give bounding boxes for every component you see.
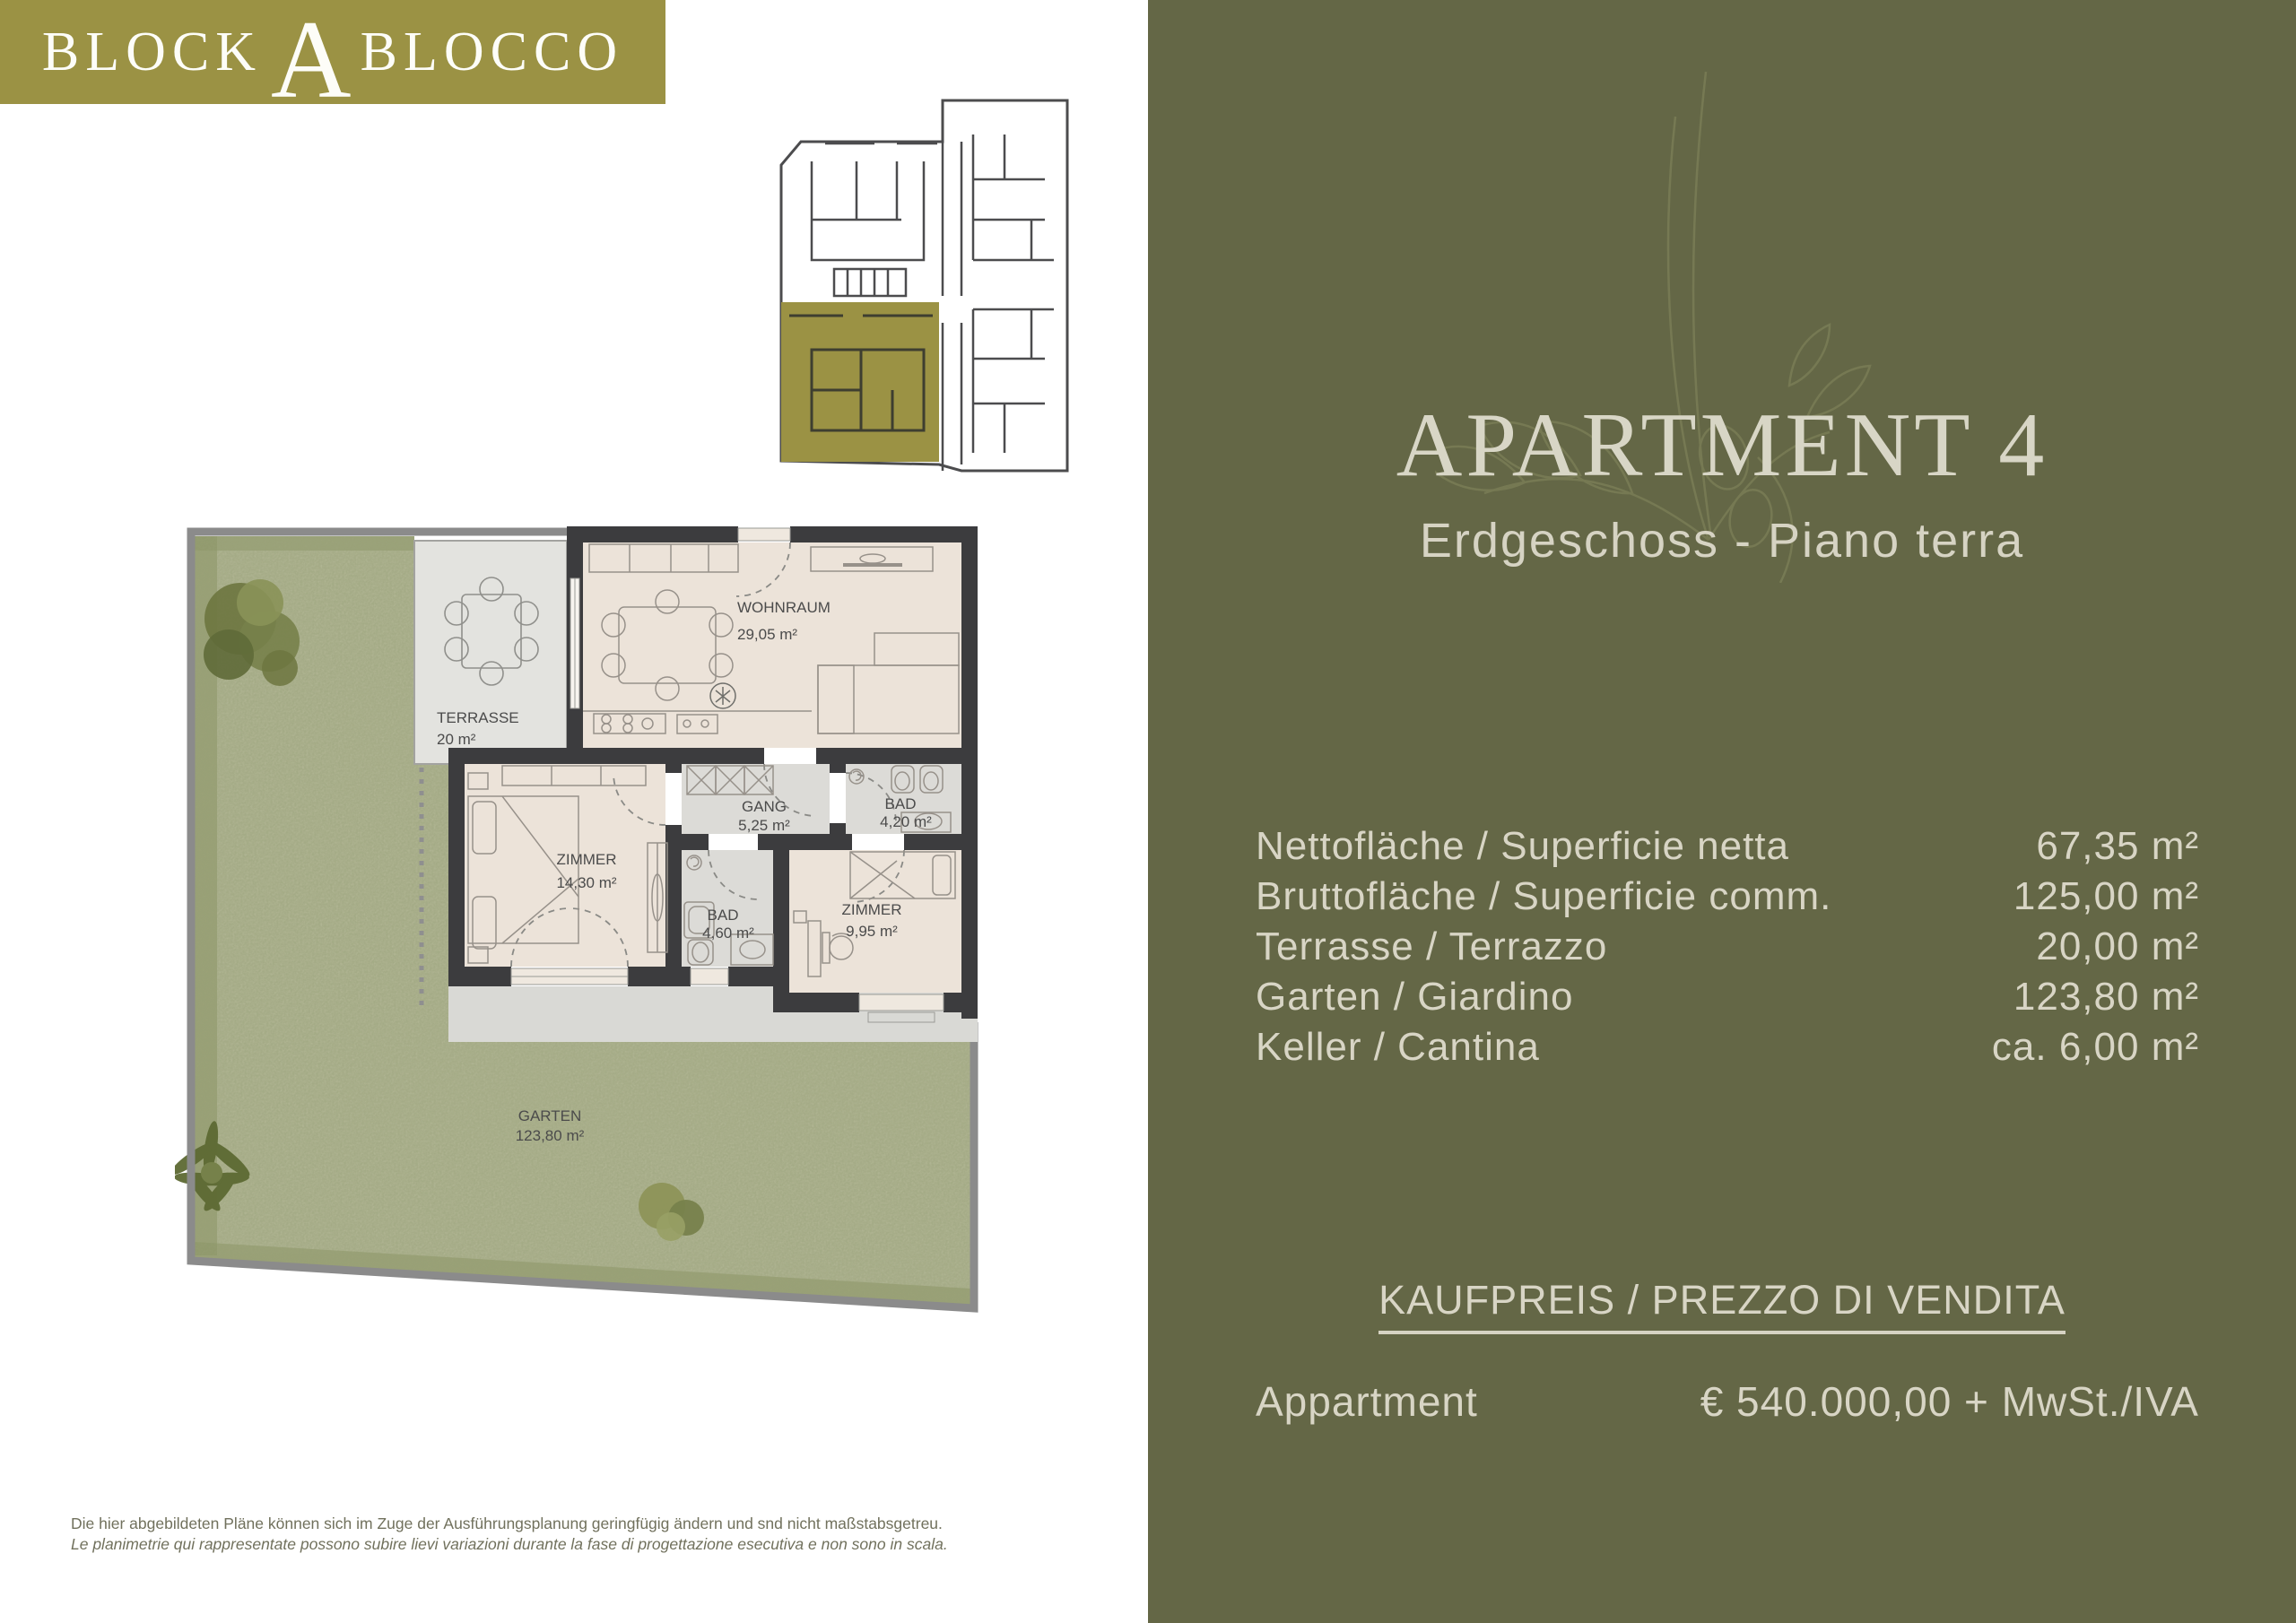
bad1-label: BAD: [885, 795, 917, 812]
info-panel: APARTMENT 4 Erdgeschoss - Piano terra Ne…: [1148, 0, 2296, 1623]
disclaimer-german: Die hier abgebildeten Pläne können sich …: [71, 1514, 1129, 1534]
zimmer1-label: ZIMMER: [556, 851, 616, 868]
gang-area: 5,25 m²: [738, 817, 790, 834]
wohnraum-label: WOHNRAUM: [737, 599, 831, 616]
zimmer2-area: 9,95 m²: [846, 923, 898, 940]
wohnraum-area: 29,05 m²: [737, 626, 797, 643]
price-item-label: Appartment: [1256, 1377, 1478, 1426]
gang-label: GANG: [742, 798, 787, 815]
logo-word-block: BLOCK: [42, 0, 262, 104]
area-value: 20,00 m²: [2036, 922, 2199, 972]
wohnraum-floor: [583, 542, 961, 748]
olive-branch-icon: [1435, 27, 1973, 583]
page-title: APARTMENT 4: [1148, 393, 2296, 498]
area-label: Terrasse / Terrazzo: [1256, 922, 1607, 972]
area-label: Nettofläche / Superficie netta: [1256, 821, 1789, 872]
table-row: Nettofläche / Superficie netta 67,35 m²: [1256, 821, 2199, 872]
area-label: Keller / Cantina: [1256, 1022, 1540, 1072]
table-row: Bruttofläche / Superficie comm. 125,00 m…: [1256, 872, 2199, 922]
zimmer1-area: 14,30 m²: [556, 874, 616, 891]
page-subtitle: Erdgeschoss - Piano terra: [1148, 513, 2296, 568]
terrace-label: TERRASSE: [437, 709, 519, 726]
bad1-area: 4,20 m²: [880, 813, 932, 830]
area-value: ca. 6,00 m²: [1992, 1022, 2199, 1072]
bad2-label: BAD: [708, 907, 739, 924]
table-row: Garten / Giardino 123,80 m²: [1256, 972, 2199, 1022]
disclaimer: Die hier abgebildeten Pläne können sich …: [71, 1514, 1129, 1554]
price-value: € 540.000,00 + MwSt./IVA: [1700, 1377, 2199, 1426]
area-value: 125,00 m²: [2013, 872, 2199, 922]
brand-logo: BLOCK A BLOCCO: [0, 0, 665, 104]
price-heading: KAUFPREIS / PREZZO DI VENDITA: [1148, 1277, 2296, 1334]
area-value: 123,80 m²: [2013, 972, 2199, 1022]
area-label: Bruttofläche / Superficie comm.: [1256, 872, 1831, 922]
garten-label: GARTEN: [518, 1107, 582, 1124]
price-row: Appartment € 540.000,00 + MwSt./IVA: [1256, 1377, 2199, 1426]
bad2-area: 4,60 m²: [702, 924, 754, 942]
floor-plan: TERRASSE 20 m²: [175, 516, 1036, 1341]
logo-letter-a: A: [271, 15, 352, 104]
table-row: Terrasse / Terrazzo 20,00 m²: [1256, 922, 2199, 972]
garten-area: 123,80 m²: [516, 1127, 585, 1144]
disclaimer-italian: Le planimetrie qui rappresentate possono…: [71, 1534, 1129, 1555]
table-row: Keller / Cantina ca. 6,00 m²: [1256, 1022, 2199, 1072]
brochure-page: BLOCK A BLOCCO: [0, 0, 2296, 1623]
site-key-plan: [770, 92, 1078, 480]
area-table: Nettofläche / Superficie netta 67,35 m² …: [1256, 821, 2199, 1072]
area-label: Garten / Giardino: [1256, 972, 1574, 1022]
zimmer2-label: ZIMMER: [841, 901, 901, 918]
logo-word-blocco: BLOCCO: [361, 0, 623, 104]
terrace-area: 20 m²: [437, 731, 476, 748]
area-value: 67,35 m²: [2036, 821, 2199, 872]
